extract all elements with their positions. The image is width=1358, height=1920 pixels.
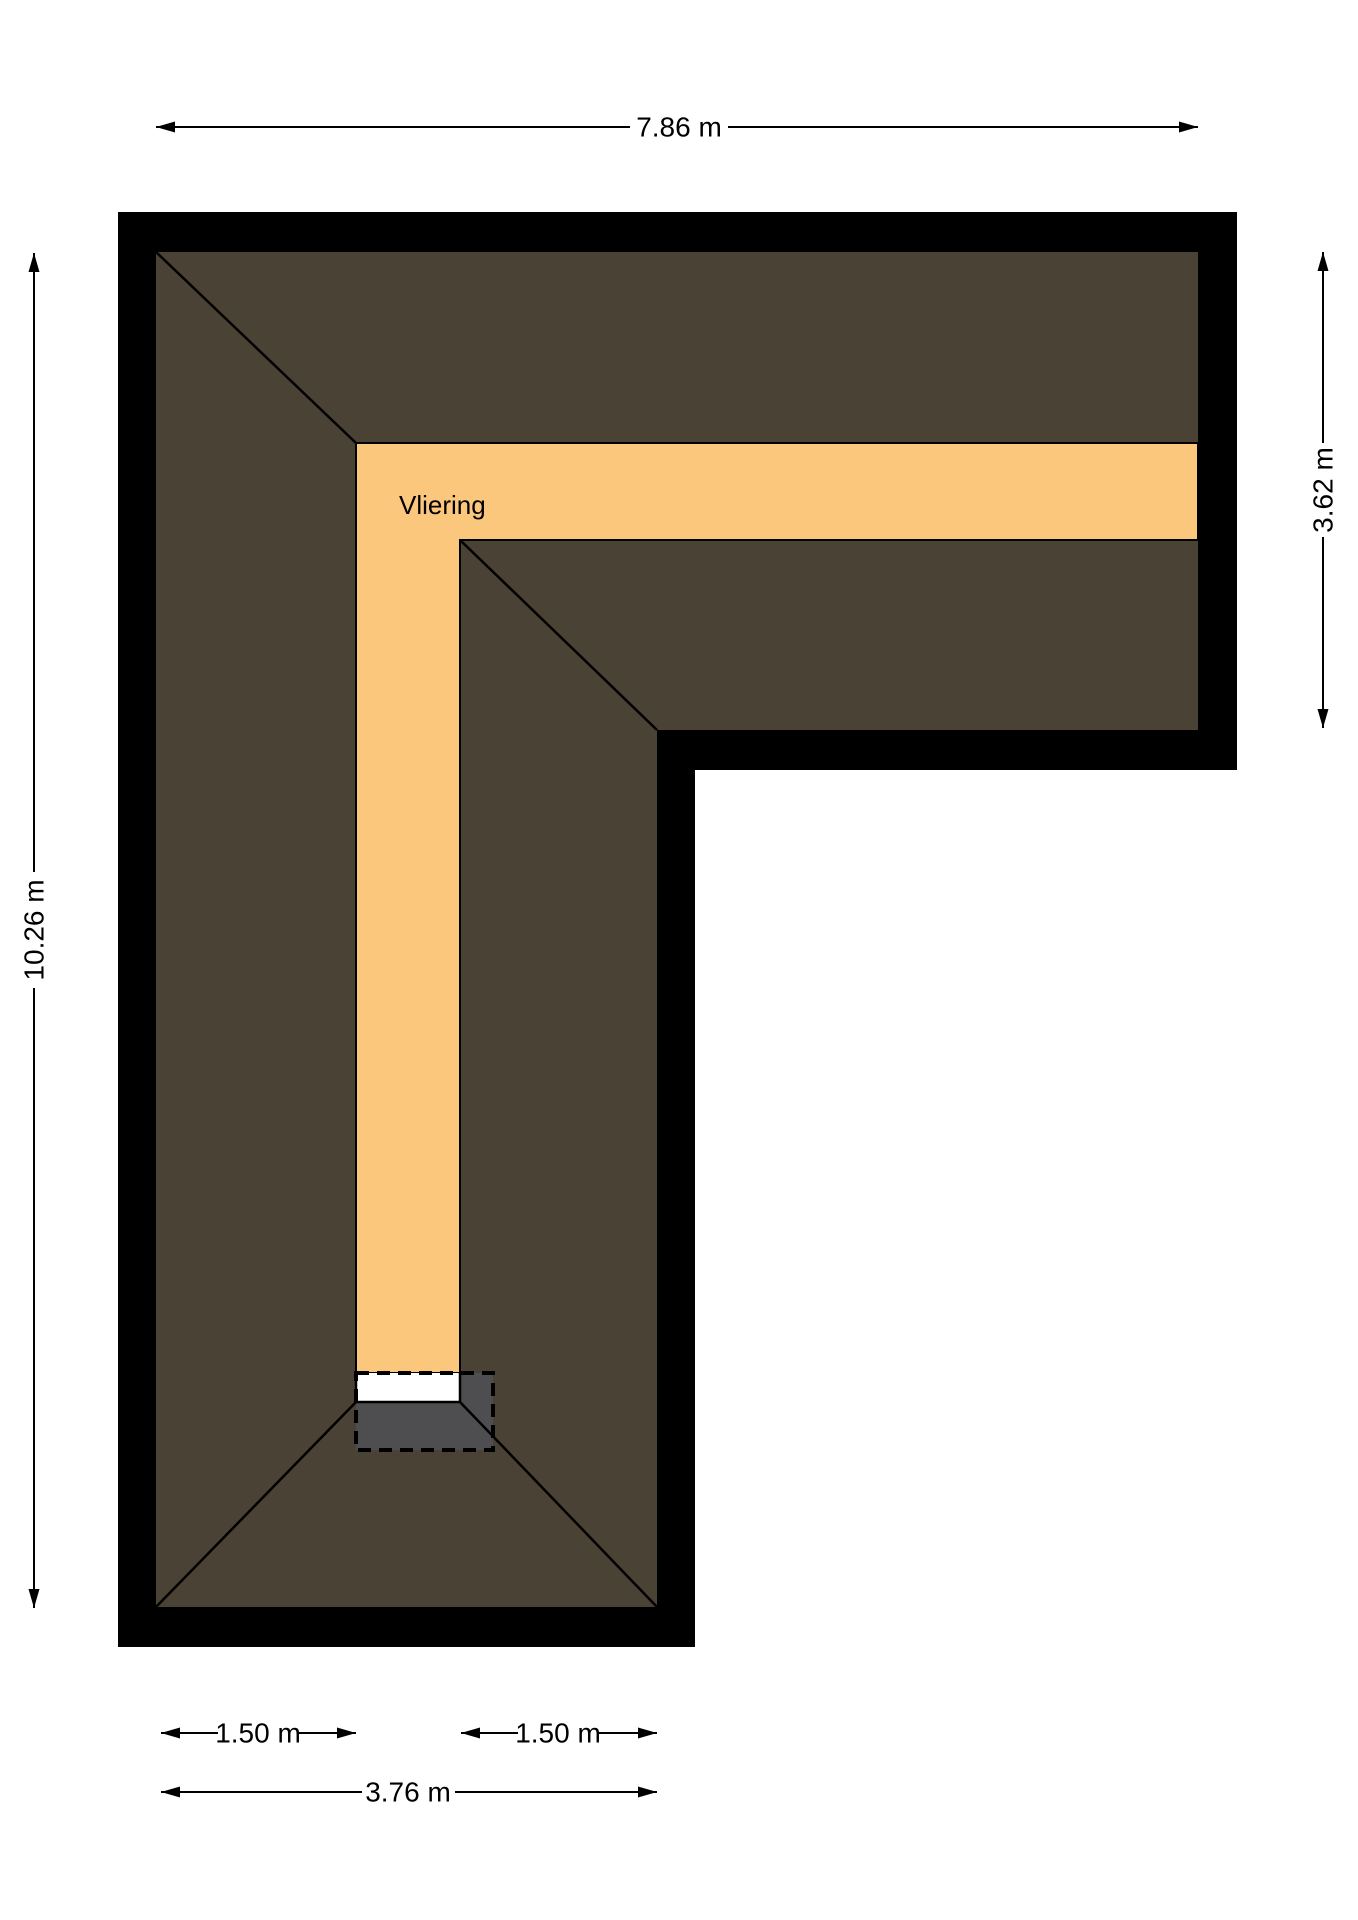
dimension-bottom-left-segment: 1.50 m: [161, 1718, 356, 1749]
floor-plan-svg: Vliering 7.86 m 10.26 m 3.62 m 1.50 m: [0, 0, 1358, 1920]
dimension-right-label: 3.62 m: [1308, 447, 1339, 533]
stair-landing-strip: [356, 1373, 460, 1402]
dimension-bottom-right-segment: 1.50 m: [461, 1718, 657, 1749]
dimension-left: 10.26 m: [19, 253, 50, 1608]
dimension-brs-label: 1.50 m: [515, 1718, 601, 1749]
floorplan-page: Vliering 7.86 m 10.26 m 3.62 m 1.50 m: [0, 0, 1358, 1920]
dimension-bls-label: 1.50 m: [215, 1718, 301, 1749]
dimension-right: 3.62 m: [1308, 252, 1339, 728]
room-label: Vliering: [399, 490, 486, 520]
dimension-top-label: 7.86 m: [636, 112, 722, 143]
dimension-bottom-total: 3.76 m: [161, 1777, 657, 1808]
dimension-top: 7.86 m: [156, 112, 1198, 143]
dimension-left-label: 10.26 m: [19, 879, 50, 980]
dimension-bt-label: 3.76 m: [365, 1777, 451, 1808]
